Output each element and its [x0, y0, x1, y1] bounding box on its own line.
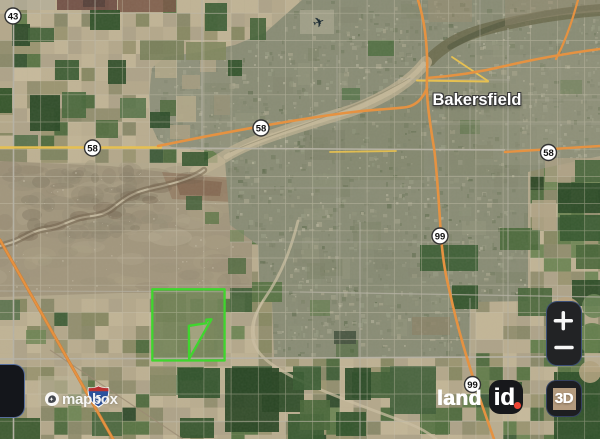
- svg-text:99: 99: [435, 231, 446, 242]
- svg-text:43: 43: [8, 11, 19, 22]
- svg-text:58: 58: [256, 123, 267, 134]
- svg-text:58: 58: [87, 143, 98, 154]
- svg-text:58: 58: [543, 148, 554, 159]
